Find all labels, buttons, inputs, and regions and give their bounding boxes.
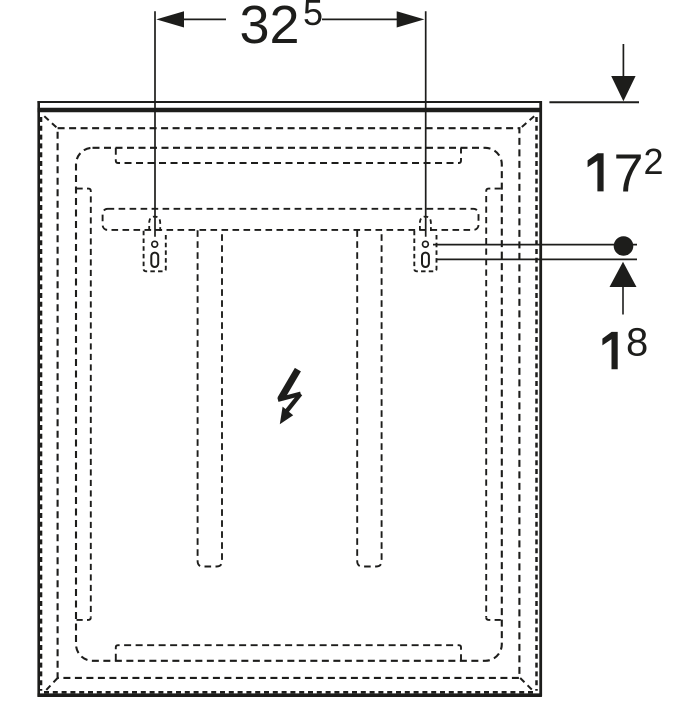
- svg-text:2: 2: [644, 141, 664, 182]
- svg-text:32: 32: [240, 0, 300, 55]
- svg-text:5: 5: [303, 0, 323, 33]
- svg-text:8: 8: [626, 321, 648, 365]
- svg-text:7: 7: [614, 144, 644, 204]
